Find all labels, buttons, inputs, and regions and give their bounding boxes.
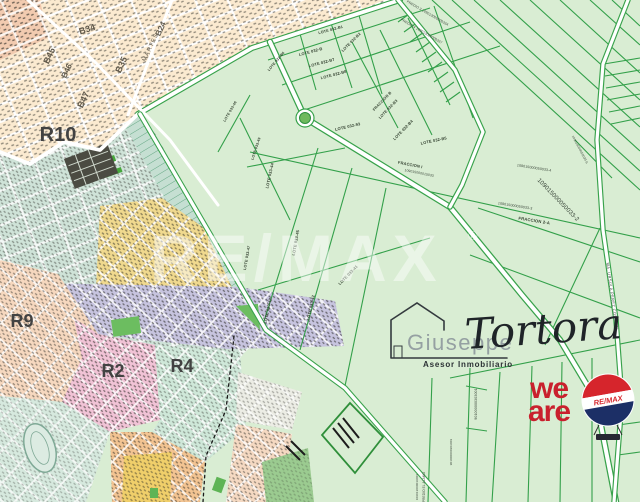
region-label: R4 — [170, 356, 193, 376]
parcel-id-label: 109013000019001 — [415, 474, 419, 501]
parcel-id-label: 901000000303003 — [449, 439, 453, 466]
region-label: R9 — [10, 311, 33, 331]
registered-mark-icon: ® — [468, 228, 478, 243]
agent-tagline: Asesor Inmobiliario — [423, 360, 513, 369]
roundabout — [296, 109, 314, 127]
weare-line2: are — [528, 395, 570, 428]
parcel-id-label: 901000000303001 — [474, 388, 478, 419]
remax-watermark: RE/MAX ® — [150, 221, 478, 295]
map-canvas: R10 R9 R2 R4 B34 B45 B46 B47 B35 B24 MAR… — [0, 0, 640, 502]
region-label: R2 — [101, 361, 124, 381]
real-estate-map-image: R10 R9 R2 R4 B34 B45 B46 B47 B35 B24 MAR… — [0, 0, 640, 502]
watermark-text: RE/MAX — [150, 221, 443, 295]
predio-label: PREDIO EL ALAMO — [422, 471, 426, 502]
region-label: R10 — [40, 124, 77, 146]
balloon-basket — [596, 434, 620, 440]
